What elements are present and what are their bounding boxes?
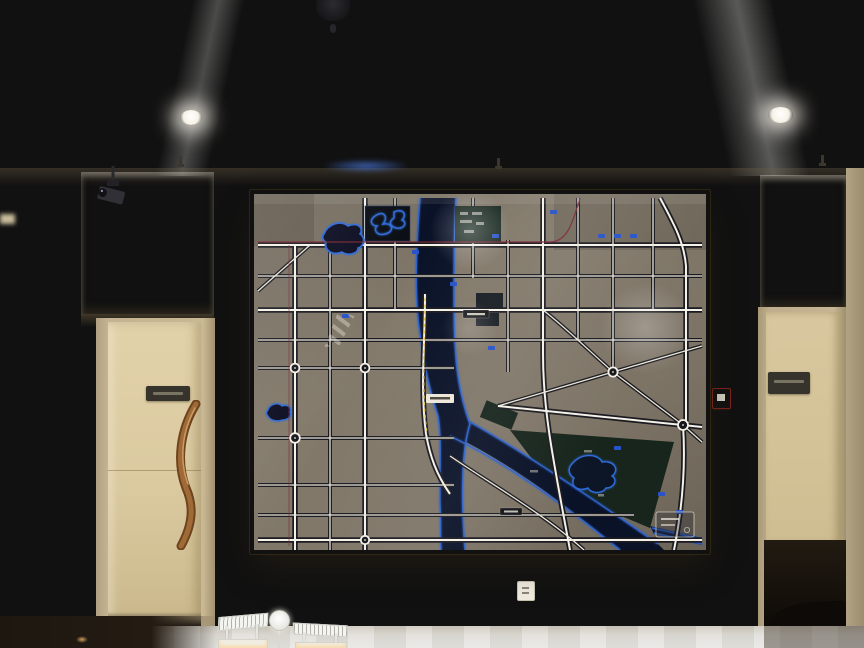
recessed-light-icon	[180, 110, 202, 125]
wall-socket	[517, 581, 535, 601]
map-screen	[254, 194, 706, 550]
door-right[interactable]	[766, 312, 841, 544]
floor-shadow-left	[0, 616, 216, 648]
model-sign-disc	[269, 610, 290, 631]
model-canopy-post	[256, 625, 258, 640]
light-beam	[110, 0, 290, 176]
illuminated-map-board	[250, 190, 710, 554]
marble-pillar-left-outer	[44, 171, 81, 633]
light-beam	[640, 0, 860, 176]
wall-edge-right	[846, 168, 864, 634]
sprinkler-icon	[497, 158, 500, 168]
lobby-scene	[0, 0, 864, 648]
map-blue-glow	[322, 159, 410, 173]
model-canopy-roof	[293, 623, 349, 638]
security-camera-icon	[96, 166, 140, 218]
model-canopy-left	[218, 615, 266, 648]
legend-box	[656, 512, 694, 537]
floor-shadow-right	[764, 626, 864, 648]
model-canopy-base	[218, 639, 268, 648]
ceiling-fixture	[316, 0, 350, 21]
textured-stone-panel-right	[760, 175, 847, 307]
corridor-light	[0, 214, 15, 224]
model-canopy-post	[226, 626, 228, 640]
marble-pillar-left-inner	[213, 169, 252, 633]
dark-corridor-opening	[0, 176, 46, 636]
ceiling	[0, 0, 864, 178]
ceiling-fixture-stem	[330, 24, 336, 33]
city-map-graphic	[254, 194, 706, 550]
door-handle-wooden[interactable]	[168, 400, 208, 550]
sprinkler-icon	[821, 155, 824, 165]
fire-alarm-call-point[interactable]	[712, 388, 731, 409]
model-canopy-base	[295, 642, 347, 648]
door-sign-right	[768, 372, 810, 394]
door-sign-left	[146, 386, 190, 401]
recessed-light-icon	[768, 107, 793, 123]
model-canopy-right	[293, 624, 346, 648]
sprinkler-icon	[179, 156, 182, 166]
floor-light-spot	[76, 636, 88, 643]
